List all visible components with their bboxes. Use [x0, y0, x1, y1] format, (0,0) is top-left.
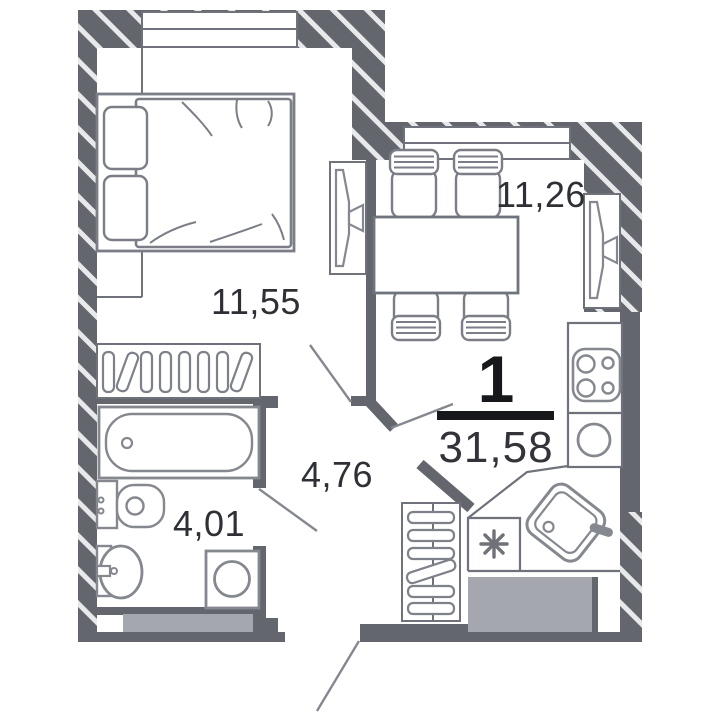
chair-icon — [454, 150, 502, 218]
bathroom-door-swing — [259, 489, 317, 531]
total-area-label: 31,58 — [438, 423, 553, 472]
bathroom-sink-icon — [97, 546, 142, 598]
rooms-count-label: 1 — [478, 342, 515, 416]
refrigerator-spot-icon — [481, 531, 507, 557]
bedroom-wardrobe-icon — [97, 344, 260, 398]
dining-table-icon — [374, 217, 518, 293]
bathroom-area-label: 4,01 — [173, 503, 245, 544]
area-divider — [437, 411, 554, 420]
radiator-icon — [330, 162, 366, 274]
bed-icon — [97, 94, 294, 251]
radiator-icon — [584, 194, 620, 308]
kitchen-counter-block — [468, 577, 592, 632]
hall-closet-icon — [402, 503, 460, 621]
bathroom-duct-block — [123, 614, 253, 632]
bedroom-area-label: 11,55 — [211, 281, 301, 322]
stove-icon — [573, 349, 620, 401]
kitchen-area-label: 11,26 — [496, 174, 586, 215]
toilet-icon — [97, 481, 164, 528]
kitchen-round-sink-icon — [578, 424, 610, 456]
floor-plan-drawing: 11,55 11,26 4,76 4,01 1 31,58 — [0, 0, 720, 720]
chair-icon — [390, 150, 438, 218]
bedroom-door-swing — [310, 345, 351, 402]
bedroom-window — [142, 12, 297, 47]
chair-icon — [462, 290, 510, 340]
floor-plan: 11,55 11,26 4,76 4,01 1 31,58 — [0, 0, 720, 720]
entrance-door-swing — [317, 641, 359, 711]
washing-machine-icon — [206, 551, 259, 608]
bathtub-icon — [99, 407, 259, 478]
chair-icon — [392, 290, 440, 340]
hallway-area-label: 4,76 — [301, 454, 373, 495]
kitchen-sink-icon — [522, 479, 620, 574]
